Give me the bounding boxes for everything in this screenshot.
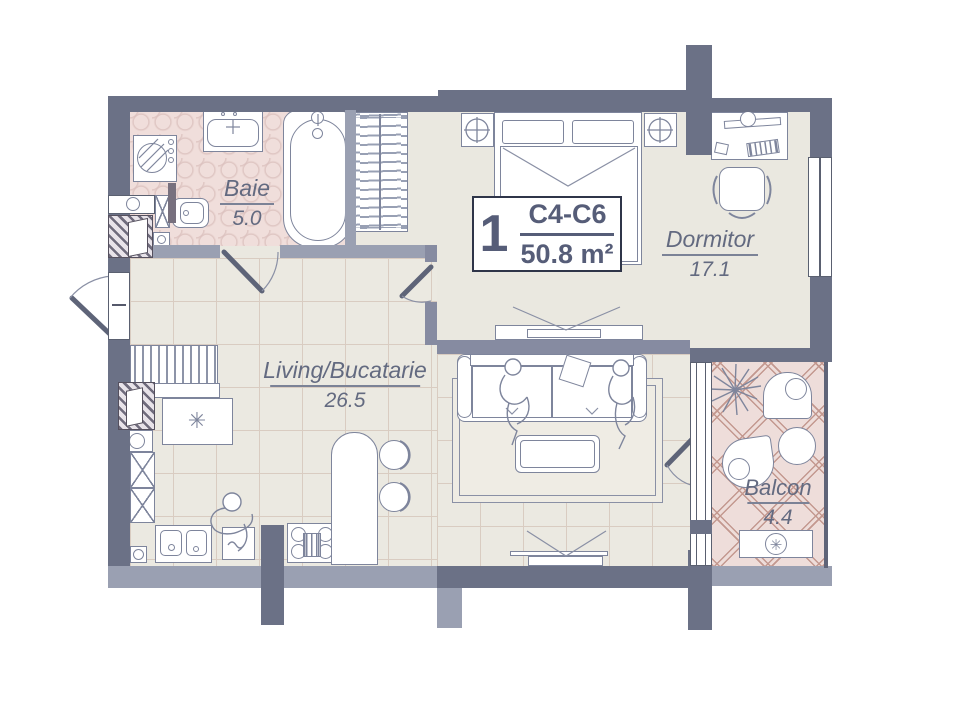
prep-counter bbox=[222, 527, 255, 560]
bedroom-tv bbox=[527, 329, 601, 338]
bar-stool bbox=[379, 440, 409, 470]
label-underline bbox=[662, 254, 758, 256]
nightstand-right bbox=[644, 113, 677, 147]
door-threshold-mark bbox=[112, 304, 126, 306]
unit-code: C4-C6 bbox=[520, 199, 614, 236]
room-name: Living/Bucatarie bbox=[263, 358, 427, 382]
balcony-railing bbox=[824, 362, 828, 568]
bar-stool bbox=[379, 482, 409, 512]
wall-segment bbox=[712, 566, 832, 586]
label-underline bbox=[270, 385, 420, 387]
glazing-line bbox=[705, 363, 706, 565]
wall-stub bbox=[437, 588, 462, 628]
sofa-seat bbox=[472, 366, 552, 418]
label-underline bbox=[747, 502, 809, 504]
wall-segment bbox=[810, 98, 832, 158]
soap-dot bbox=[221, 112, 225, 116]
soap-dot bbox=[233, 112, 237, 116]
bathroom-sink bbox=[207, 119, 259, 147]
sink-drain bbox=[193, 546, 199, 552]
wall-segment bbox=[425, 302, 437, 345]
glazing-line bbox=[696, 363, 697, 565]
office-chair bbox=[719, 167, 765, 211]
room-area: 17.1 bbox=[662, 259, 758, 281]
balcony-table bbox=[778, 427, 816, 465]
room-name: Baie bbox=[220, 176, 274, 200]
wardrobe bbox=[353, 112, 408, 232]
entrance-opening bbox=[108, 272, 130, 340]
sink-basin-right bbox=[186, 530, 207, 556]
wall-segment bbox=[437, 566, 712, 588]
desk-phone bbox=[714, 142, 729, 155]
washing-machine-drum bbox=[137, 143, 167, 173]
kitchen-appliance-circle bbox=[129, 433, 145, 449]
balcony-glazing bbox=[690, 362, 712, 566]
unit-area: 50.8 m² bbox=[520, 236, 614, 270]
washer-knob bbox=[168, 157, 174, 163]
unit-info: C4-C6 50.8 m² bbox=[520, 199, 614, 270]
room-label-living: Living/Bucatarie 26.5 bbox=[263, 358, 427, 412]
unit-room-count: 1 bbox=[480, 208, 509, 260]
shaft-inner bbox=[126, 387, 143, 427]
living-tv bbox=[528, 556, 603, 566]
room-label-dormitor: Dormitor 17.1 bbox=[662, 227, 758, 281]
wall-segment bbox=[280, 245, 437, 258]
washer-knob bbox=[168, 139, 174, 145]
room-name: Dormitor bbox=[662, 227, 758, 251]
room-area: 4.4 bbox=[744, 507, 811, 529]
sofa-back bbox=[470, 354, 634, 366]
wall-stub bbox=[686, 45, 712, 155]
shaft-inner bbox=[128, 218, 148, 257]
sink-basin-left bbox=[160, 530, 182, 556]
pillow-right bbox=[572, 120, 634, 144]
entry-closet bbox=[130, 345, 218, 385]
wall-segment bbox=[690, 348, 832, 362]
wall-segment bbox=[438, 90, 712, 112]
unit-badge: 1 C4-C6 50.8 m² bbox=[472, 196, 622, 272]
wall-segment bbox=[437, 340, 690, 354]
balcony-chair-seat bbox=[785, 378, 807, 400]
small-fixture-circle bbox=[157, 235, 166, 244]
ac-fan-icon: ✳ bbox=[770, 536, 783, 554]
label-underline bbox=[220, 203, 274, 205]
wall-stub bbox=[168, 183, 176, 223]
stove-grill bbox=[303, 533, 321, 557]
small-box-circle bbox=[133, 549, 144, 560]
base-cabinet bbox=[130, 452, 155, 488]
washer-knob bbox=[168, 148, 174, 154]
wall-segment bbox=[108, 340, 130, 588]
fridge-star-icon: ✳ bbox=[188, 408, 206, 434]
room-label-baie: Baie 5.0 bbox=[220, 176, 274, 230]
room-name: Balcon bbox=[744, 476, 811, 499]
nightstand-left bbox=[461, 113, 494, 147]
coffee-table-inner bbox=[520, 440, 595, 468]
room-area: 26.5 bbox=[263, 390, 427, 412]
bathtub-drain bbox=[312, 128, 323, 139]
wardrobe-rail bbox=[379, 114, 381, 230]
entrance-door-leaf bbox=[72, 298, 112, 336]
floor-plan: ✳ ✳ bbox=[0, 0, 957, 707]
pillow-left bbox=[502, 120, 564, 144]
desk-lamp bbox=[740, 111, 756, 127]
toilet-drain bbox=[183, 210, 189, 216]
wall-stub bbox=[690, 520, 712, 534]
wall-segment bbox=[108, 96, 438, 112]
bar-counter bbox=[331, 432, 378, 565]
wall-stub bbox=[261, 525, 284, 625]
room-area: 5.0 bbox=[220, 208, 274, 230]
wall-segment bbox=[425, 245, 437, 262]
wall-segment bbox=[345, 110, 356, 246]
wall-fixture-circle bbox=[126, 197, 140, 211]
window-mullion bbox=[819, 158, 821, 276]
sink-drain bbox=[168, 544, 175, 551]
room-label-balcon: Balcon 4.4 bbox=[744, 476, 811, 529]
bathtub-faucet bbox=[311, 111, 324, 124]
sofa-armrest bbox=[632, 356, 647, 418]
base-cabinet bbox=[130, 488, 155, 523]
